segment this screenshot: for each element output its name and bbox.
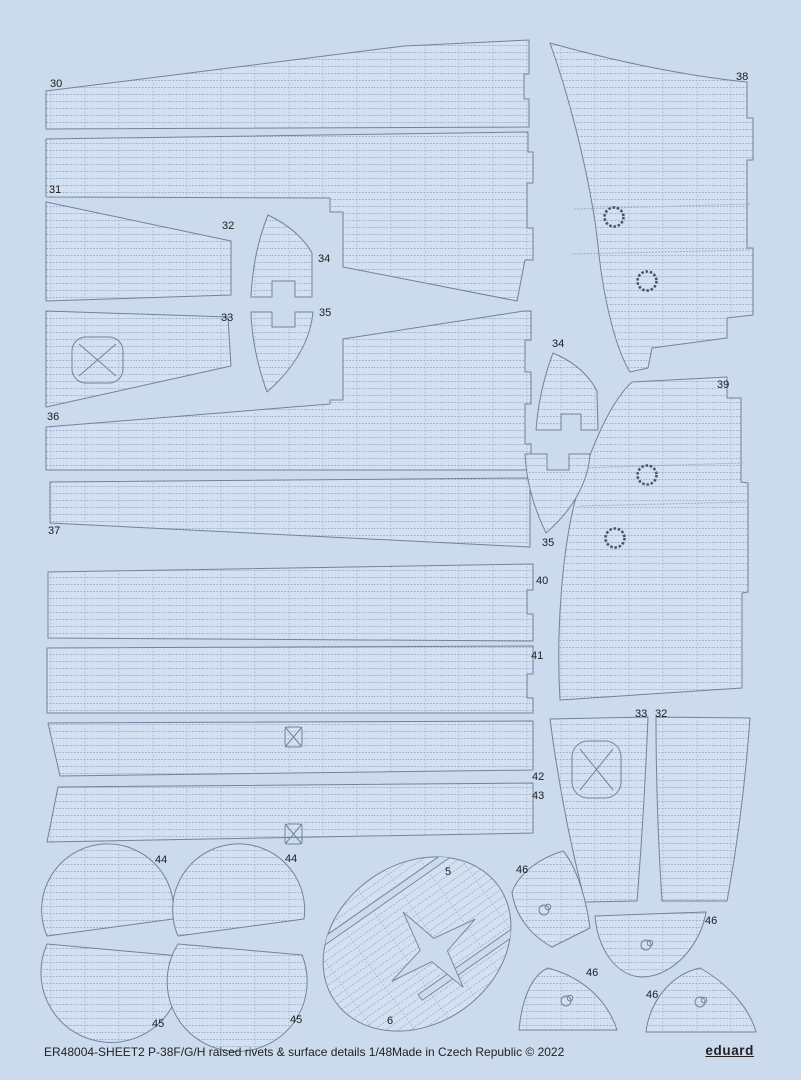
brand-logo: eduard	[705, 1043, 754, 1058]
part-number-label-44: 44	[285, 853, 297, 865]
part-number-label-35: 35	[319, 307, 331, 319]
part-number-label-5: 5	[445, 866, 451, 878]
part-number-label-32: 32	[222, 220, 234, 232]
part-number-label-41: 41	[531, 650, 543, 662]
part-40-strip	[48, 564, 533, 641]
part-number-label-40: 40	[536, 575, 548, 587]
part-number-label-31: 31	[49, 184, 61, 196]
part-number-label-39: 39	[717, 379, 729, 391]
part-number-label-46: 46	[516, 864, 528, 876]
part-number-label-46: 46	[586, 967, 598, 979]
part-number-label-34: 34	[552, 338, 564, 350]
origin-copyright: Made in Czech Republic © 2022	[392, 1045, 564, 1059]
part-number-label-45: 45	[152, 1018, 164, 1030]
part-number-label-38: 38	[736, 71, 748, 83]
part-number-label-42: 42	[532, 771, 544, 783]
part-number-label-33: 33	[635, 708, 647, 720]
sheet-footer: ER48004-SHEET2 P-38F/G/H raised rivets &…	[0, 1043, 801, 1067]
part-43-strip	[47, 783, 533, 844]
part-number-label-32: 32	[655, 708, 667, 720]
part-number-label-33: 33	[221, 312, 233, 324]
part-number-label-43: 43	[532, 790, 544, 802]
part-number-label-6: 6	[387, 1015, 393, 1027]
part-number-label-46: 46	[705, 915, 717, 927]
part-42-strip	[48, 721, 533, 776]
part-number-label-34: 34	[318, 253, 330, 265]
photoetch-sheet: 3031323433353637383439354041424333324444…	[0, 0, 801, 1080]
part-41-strip	[47, 646, 533, 713]
part-number-label-44: 44	[155, 854, 167, 866]
part-number-label-37: 37	[48, 525, 60, 537]
sheet-canvas: 3031323433353637383439354041424333324444…	[0, 0, 801, 1080]
part-number-label-35: 35	[542, 537, 554, 549]
part-number-label-46: 46	[646, 989, 658, 1001]
sheet-title: ER48004-SHEET2 P-38F/G/H raised rivets &…	[44, 1045, 392, 1059]
part-number-label-36: 36	[47, 411, 59, 423]
part-number-label-45: 45	[290, 1014, 302, 1026]
part-number-label-30: 30	[50, 78, 62, 90]
